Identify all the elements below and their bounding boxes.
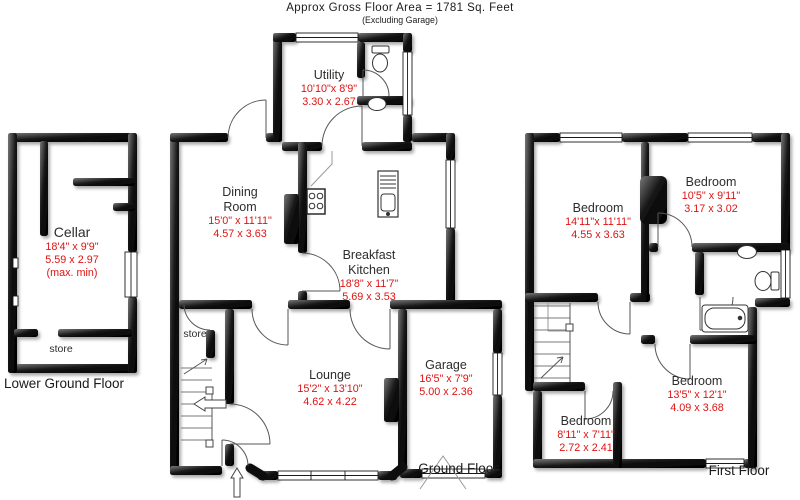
room-dims-m: 4.62 x 4.22 <box>297 396 362 409</box>
newel-post <box>206 387 213 394</box>
room-label-bedroom-3: Bedroom 13'5" x 12'1" 4.09 x 3.68 <box>667 374 726 415</box>
room-dims-m: 4.57 x 3.63 <box>208 228 272 241</box>
bathroom-toilet-fixture <box>755 272 779 291</box>
first-floor-label: First Floor <box>709 463 770 478</box>
room-name: Garage <box>419 358 472 373</box>
newel-post <box>206 440 213 447</box>
stairs-direction-arrow <box>194 397 226 411</box>
room-dims-note: (max. min) <box>45 267 98 280</box>
room-dims-ft: 10'5" x 9'11" <box>682 190 740 203</box>
room-label-store-ground: store <box>183 328 206 340</box>
first-floor-staircase <box>534 303 573 382</box>
wall-recess <box>13 258 18 268</box>
dining-chimney-breast <box>284 194 299 244</box>
room-dims-ft: 14'11"x 11'11" <box>565 216 631 229</box>
floor-area-text: Approx Gross Floor Area = 1781 Sq. Feet <box>0 2 800 14</box>
hob-fixture <box>307 189 325 214</box>
room-dims-ft: 16'5" x 7'9" <box>419 373 472 386</box>
room-name: Bedroom <box>557 414 615 429</box>
room-dims-m: 4.55 x 3.63 <box>565 229 631 242</box>
room-name: Bedroom <box>565 201 631 216</box>
lower-ground-floor-label: Lower Ground Floor <box>4 376 124 391</box>
room-dims-m: 5.59 x 2.97 <box>45 254 98 267</box>
ground-floor-staircase <box>181 359 226 447</box>
wc-toilet-fixture <box>372 46 389 72</box>
room-name: Cellar <box>45 224 98 241</box>
lounge-fireplace-breast <box>384 378 399 422</box>
room-name: Bedroom <box>682 175 740 190</box>
room-dims-ft: 8'11" x 7'11" <box>557 429 615 442</box>
room-name: Utility <box>301 68 357 83</box>
room-dims-m: 2.72 x 2.41 <box>557 442 615 455</box>
room-name: Dining Room <box>208 185 272 215</box>
bay-chamfer-wall <box>250 468 263 476</box>
room-label-utility: Utility 10'10"x 8'9" 3.30 x 2.67 <box>301 68 357 109</box>
room-label-lounge: Lounge 15'2" x 13'10" 4.62 x 4.22 <box>297 368 362 409</box>
door-swings <box>184 70 733 466</box>
floorplan-canvas <box>0 0 800 500</box>
door-arc <box>228 100 266 138</box>
room-name: Breakfast Kitchen <box>340 248 398 278</box>
wardrobe-fixture <box>640 176 667 224</box>
wc-basin-fixture <box>368 98 386 111</box>
floorplan-page: Approx Gross Floor Area = 1781 Sq. Feet … <box>0 0 800 500</box>
room-dims-m: 3.17 x 3.02 <box>682 203 740 216</box>
entrance-arrow <box>231 468 243 497</box>
bathtub-fixture <box>702 305 748 332</box>
room-label-garage: Garage 16'5" x 7'9" 5.00 x 2.36 <box>419 358 472 399</box>
room-label-cellar: Cellar 18'4" x 9'9" 5.59 x 2.97 (max. mi… <box>45 224 98 280</box>
room-dims-ft: 13'5" x 12'1" <box>667 389 726 402</box>
room-name: Lounge <box>297 368 362 383</box>
door-arc <box>598 302 630 334</box>
room-label-dining-room: Dining Room 15'0" x 11'11" 4.57 x 3.63 <box>208 185 272 241</box>
room-label-bedroom-4: Bedroom 8'11" x 7'11" 2.72 x 2.41 <box>557 414 615 455</box>
room-dims-m: 3.30 x 2.67 <box>301 96 357 109</box>
room-dims-ft: 10'10"x 8'9" <box>301 83 357 96</box>
room-label-bedroom-2: Bedroom 10'5" x 9'11" 3.17 x 3.02 <box>682 175 740 216</box>
wall-recess <box>13 296 18 306</box>
door-arc <box>350 309 390 349</box>
room-dims-ft: 15'0" x 11'11" <box>208 215 272 228</box>
door-arc <box>322 106 362 146</box>
door-arc <box>302 253 340 291</box>
room-label-bedroom-1: Bedroom 14'11"x 11'11" 4.55 x 3.63 <box>565 201 631 242</box>
bathroom-basin-fixture <box>738 246 757 259</box>
room-dims-ft: 18'8" x 11'7" <box>340 278 398 291</box>
room-dims-ft: 18'4" x 9'9" <box>45 241 98 254</box>
room-dims-m: 5.00 x 2.36 <box>419 386 472 399</box>
door-arc <box>252 309 288 345</box>
room-dims-ft: 15'2" x 13'10" <box>297 383 362 396</box>
door-arc <box>230 404 270 444</box>
newel-post <box>566 324 573 331</box>
room-dims-m: 4.09 x 3.68 <box>667 402 726 415</box>
floor-area-note: (Excluding Garage) <box>0 15 800 25</box>
door-arc <box>363 70 389 96</box>
ground-floor-label: Ground Floor <box>418 461 498 476</box>
page-header: Approx Gross Floor Area = 1781 Sq. Feet … <box>0 2 800 25</box>
room-label-store-lower: store <box>49 343 72 355</box>
kitchen-sink-fixture <box>378 171 398 217</box>
room-dims-m: 5.69 x 3.53 <box>340 291 398 304</box>
room-label-breakfast-kitchen: Breakfast Kitchen 18'8" x 11'7" 5.69 x 3… <box>340 248 398 304</box>
room-name: Bedroom <box>667 374 726 389</box>
